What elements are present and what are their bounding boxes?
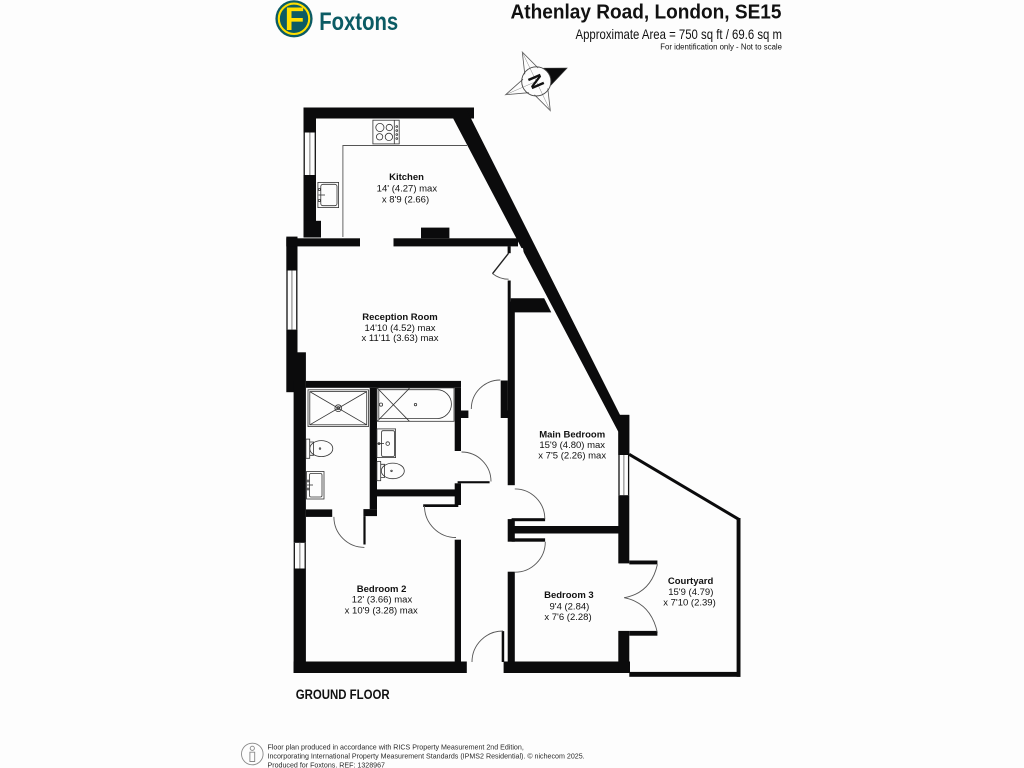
svg-text:For identification only - Not: For identification only - Not to scale: [660, 43, 782, 52]
svg-text:Reception Room: Reception Room: [362, 312, 437, 323]
svg-text:Kitchen: Kitchen: [389, 172, 424, 183]
svg-text:x 7'5 (2.26) max: x 7'5 (2.26) max: [538, 451, 606, 462]
svg-text:Produced for Foxtons. REF:: Produced for Foxtons. REF: 1328967: [268, 762, 386, 768]
svg-text:GROUND FLOOR: GROUND FLOOR: [296, 687, 390, 703]
svg-text:15'9 (4.79): 15'9 (4.79): [668, 587, 713, 598]
svg-text:9'4 (2.84): 9'4 (2.84): [549, 601, 589, 612]
svg-text:Athenlay Road, London, SE15: Athenlay Road, London, SE15: [511, 2, 782, 24]
svg-text:Foxtons: Foxtons: [319, 8, 398, 36]
svg-text:x 7'10 (2.39): x 7'10 (2.39): [663, 597, 716, 608]
svg-text:Bedroom 3: Bedroom 3: [544, 590, 594, 601]
svg-text:x 7'6 (2.28): x 7'6 (2.28): [544, 612, 591, 623]
svg-text:15'9 (4.80) max: 15'9 (4.80) max: [539, 440, 605, 451]
svg-text:x 10'9 (3.28) max: x 10'9 (3.28) max: [345, 605, 418, 616]
svg-text:F: F: [285, 1, 305, 37]
svg-text:12' (3.66) max: 12' (3.66) max: [352, 594, 413, 605]
svg-text:x 11'11 (3.63) max: x 11'11 (3.63) max: [362, 333, 439, 344]
svg-text:Courtyard: Courtyard: [668, 576, 714, 587]
svg-text:Approximate Area = 750 sq ft /: Approximate Area = 750 sq ft / 69.6 sq m: [576, 26, 783, 42]
svg-text:x 8'9 (2.66): x 8'9 (2.66): [382, 195, 429, 206]
svg-text:14' (4.27) max: 14' (4.27) max: [377, 184, 438, 195]
svg-text:Floor plan produced in accorda: Floor plan produced in accordance with R…: [268, 743, 524, 751]
svg-text:Main Bedroom: Main Bedroom: [539, 429, 605, 440]
svg-text:Incorporating International Pr: Incorporating International Property Mea…: [268, 753, 585, 761]
